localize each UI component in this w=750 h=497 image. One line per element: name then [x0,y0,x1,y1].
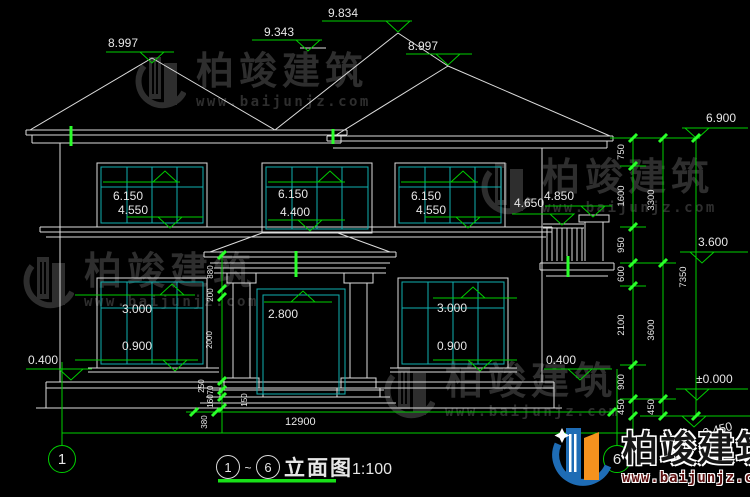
dim-380: 380 [200,415,209,429]
axis-1-label: 1 [58,451,66,468]
level-roof-left-ridge: 9.343 [264,25,294,39]
title-axis-start: 1 [224,460,231,475]
dim-porch-5: 160 [206,394,215,408]
brand-logo-text: 柏竣建筑 [622,431,750,467]
level-f1r-top: 3.000 [437,301,467,315]
level-f1r-bottom: 0.900 [437,339,467,353]
drawing-scale: 1:100 [352,461,392,478]
level-f2l-top: 6.150 [113,189,143,203]
dim-porch-2: 2000 [205,331,214,349]
level-roof-right-hip: 8.997 [408,39,438,53]
dim-col1-5: 900 [616,374,627,390]
dim-col1-4: 2100 [616,314,627,335]
dim-col2-2: 450 [646,399,657,415]
roof-elevation-markers: 8.997 9.343 9.834 8.997 [106,6,472,65]
drawing-title: 立面图 [284,456,353,480]
dim-step: 150 [240,393,249,407]
level-f2m-top: 6.150 [278,187,308,201]
right-elevation-markers: 6.900 3.600 ±0.000 -0.450 [640,111,750,441]
level-right-band: 3.600 [698,235,728,249]
level-balcony-cap: 4.850 [544,189,574,203]
level-f2r-bottom: 4.550 [416,203,446,217]
dim-porch-1: 200 [206,288,215,302]
level-f2l-bottom: 4.550 [118,203,148,217]
level-roof-main-ridge: 9.834 [328,6,358,20]
level-f2m-bottom: 4.400 [280,205,310,219]
roof-outline [26,33,613,148]
level-f2r-top: 6.150 [411,189,441,203]
level-door-top: 2.800 [268,307,298,321]
level-plinth-right: 0.400 [546,353,576,367]
dim-col2-0: 3300 [646,189,657,210]
dim-porch-0: 880 [206,265,215,279]
balcony [540,215,614,276]
dim-col1-2: 950 [616,237,627,253]
level-balcony-rail: 4.650 [514,196,544,210]
title-block: 1 ~ 6 立面图 1:100 [217,456,393,483]
level-right-eave: 6.900 [706,111,736,125]
level-plinth-left: 0.400 [28,353,58,367]
title-tilde: ~ [244,461,251,475]
entry-door [257,289,345,394]
right-dimension-chains: 750 1600 950 600 2100 900 450 3300 3600 … [610,134,700,433]
dim-12900: 12900 [285,416,316,428]
dim-col1-0: 750 [616,144,627,160]
level-roof-left-hip: 8.997 [108,36,138,50]
brand-logo-icon [544,422,616,494]
window-floor1-left [88,278,219,372]
dim-col1-1: 1600 [616,185,627,206]
dim-col3-0: 7350 [678,266,689,287]
level-f1l-top: 3.000 [122,302,152,316]
brand-logo-url: www.baijunjz.com [622,470,750,486]
level-right-zero: ±0.000 [696,372,733,386]
dim-porch-3: 250 [197,379,206,393]
level-f1l-bottom: 0.900 [122,339,152,353]
dim-col1-6: 450 [616,399,627,415]
dim-col2-1: 3600 [646,319,657,340]
window-floor1-right [390,278,517,372]
title-axis-end: 6 [264,460,271,475]
dim-col1-3: 600 [616,266,627,282]
green-ticks [71,126,568,277]
brand-logo: 柏竣建筑 www.baijunjz.com [544,422,750,494]
dim-porch-4: 70 [206,385,215,394]
cad-elevation-drawing: 柏竣建筑 www.baijunjz.com 柏竣建筑 www.baijunjz.… [0,0,750,497]
window-level-markers: 6.150 4.550 6.150 4.400 6.150 4.550 3.00… [26,171,612,380]
